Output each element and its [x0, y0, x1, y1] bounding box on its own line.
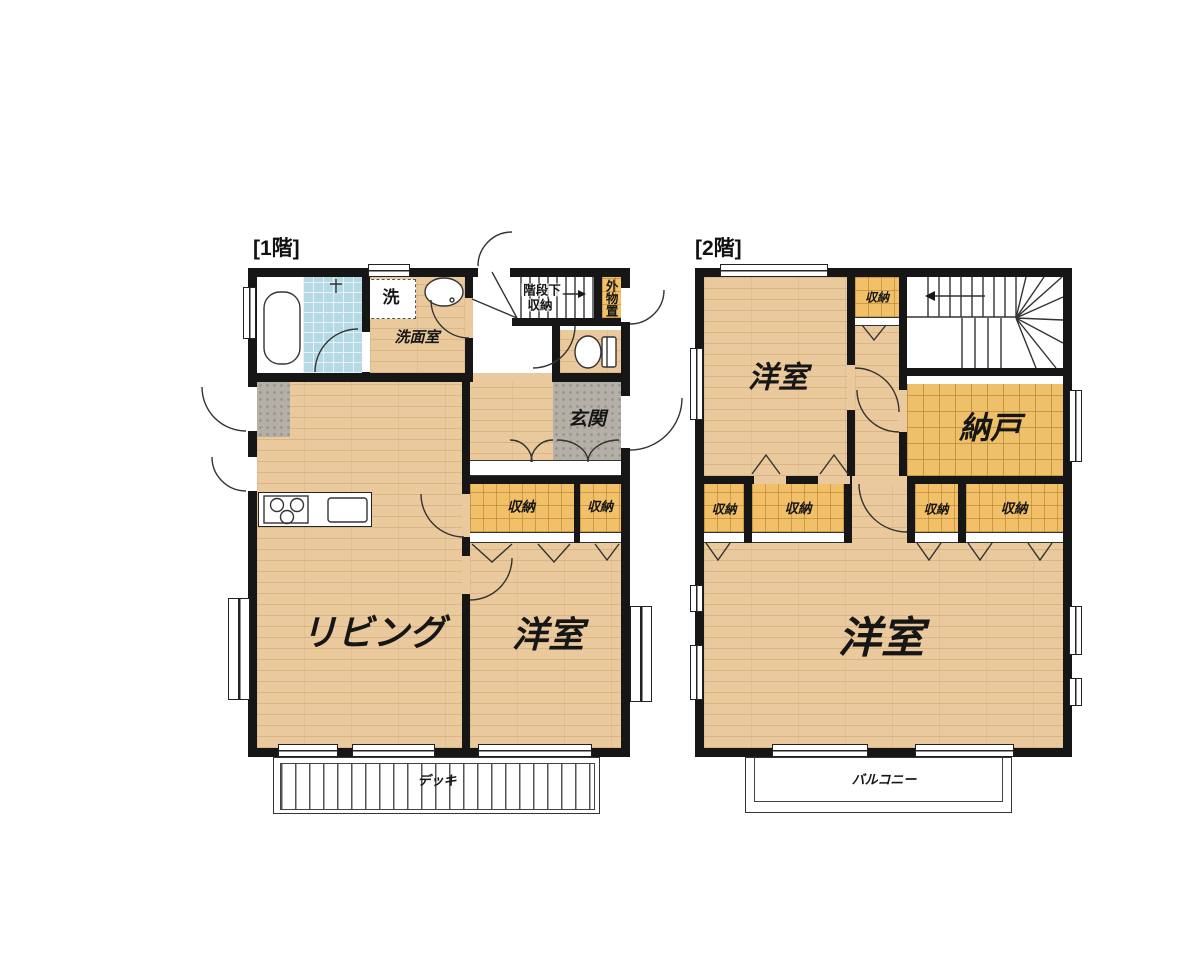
label-bedroom-2f-small: 洋室 — [748, 362, 808, 394]
door-gap — [847, 365, 855, 410]
window — [1069, 678, 1082, 706]
wall — [462, 373, 470, 476]
label-bedroom-2f-large: 洋室 — [838, 616, 924, 661]
door-gap — [248, 387, 257, 431]
wall — [248, 373, 630, 382]
label-living: リビング — [301, 615, 445, 653]
wall — [744, 480, 752, 543]
bay-window — [228, 598, 250, 700]
closet1f-a-threshold — [470, 532, 574, 543]
bathroom-tile-floor — [303, 277, 362, 373]
floor2-title: [2階] — [695, 232, 742, 262]
toilet-floor — [560, 330, 621, 373]
label-under-stair-storage-2: 収納 — [525, 298, 554, 311]
door-gap — [473, 373, 552, 382]
door-arc — [478, 232, 512, 266]
hall2f-floor — [855, 326, 899, 476]
window — [278, 744, 338, 757]
bay-window — [630, 606, 652, 702]
window — [1069, 390, 1082, 462]
label-storage-1fa: 収納 — [507, 501, 535, 516]
wall — [552, 326, 560, 373]
wall — [899, 268, 907, 376]
door-gap — [462, 556, 470, 594]
closet2f-top-threshold — [855, 317, 899, 326]
door-gap — [899, 390, 907, 432]
wall — [462, 594, 470, 748]
wall — [594, 268, 602, 326]
label-storage-1fb: 収納 — [587, 501, 613, 515]
label-washroom: 洗面室 — [394, 330, 439, 346]
wall — [574, 480, 580, 543]
closet2f-a-threshold — [704, 532, 744, 543]
label-washer: 洗 — [383, 290, 400, 308]
label-balcony: バルコニー — [852, 774, 917, 788]
door-gap — [754, 476, 786, 484]
label-entrance: 玄関 — [568, 410, 606, 430]
door-gap — [465, 298, 473, 338]
kitchen-counter — [258, 492, 372, 527]
closet2f-d-threshold — [966, 532, 1063, 543]
entrance-closet-strip — [470, 460, 621, 476]
label-storage-2fd: 収納 — [1001, 502, 1028, 516]
label-storage-2fc: 収納 — [923, 502, 948, 515]
door-gap — [362, 332, 370, 372]
label-storage-2f-top: 収納 — [865, 292, 889, 305]
wall — [462, 476, 621, 484]
window — [352, 744, 435, 757]
wall — [958, 480, 966, 543]
wall — [847, 268, 855, 365]
door-gap — [248, 457, 257, 491]
door-arc — [202, 387, 246, 491]
door-gap — [462, 494, 470, 537]
closet1f-b-threshold — [580, 532, 621, 543]
closet2f-b-threshold — [752, 532, 844, 543]
door-arc — [630, 290, 664, 324]
door-gap — [818, 476, 850, 484]
label-under-stair-storage-1: 階段下 — [521, 283, 563, 296]
window — [915, 744, 1014, 757]
wall — [512, 318, 630, 326]
window — [690, 348, 703, 420]
window — [772, 744, 868, 757]
window — [368, 264, 410, 277]
window — [1069, 606, 1082, 655]
floor1-title: [1階] — [253, 232, 300, 262]
door-gap — [621, 288, 630, 322]
window — [243, 287, 256, 339]
floor-plan: [1階] [2階] — [0, 0, 1200, 960]
bathtub-zone — [257, 277, 303, 373]
door-arc — [630, 398, 682, 450]
closet2f-c-threshold — [915, 532, 958, 543]
door-gap — [621, 396, 630, 448]
window — [690, 645, 703, 700]
wall — [844, 480, 852, 543]
wall — [907, 480, 915, 543]
wall — [899, 368, 1063, 376]
label-storage-2fa: 収納 — [711, 502, 736, 515]
door-gap — [478, 268, 510, 277]
label-outdoor-storage: 外物置 — [604, 279, 617, 317]
wall — [621, 268, 630, 757]
label-storeroom: 納戸 — [959, 413, 1021, 446]
window — [720, 264, 828, 277]
wall — [847, 410, 855, 476]
wall — [248, 268, 630, 277]
window — [690, 585, 703, 612]
label-bedroom-1f: 洋室 — [512, 617, 584, 655]
kitchen-pantry-block — [257, 382, 290, 437]
window — [478, 744, 592, 757]
label-deck: デッキ — [417, 775, 456, 789]
door-gap — [852, 476, 907, 484]
label-storage-2fb: 収納 — [785, 502, 812, 516]
wall — [695, 748, 1072, 757]
